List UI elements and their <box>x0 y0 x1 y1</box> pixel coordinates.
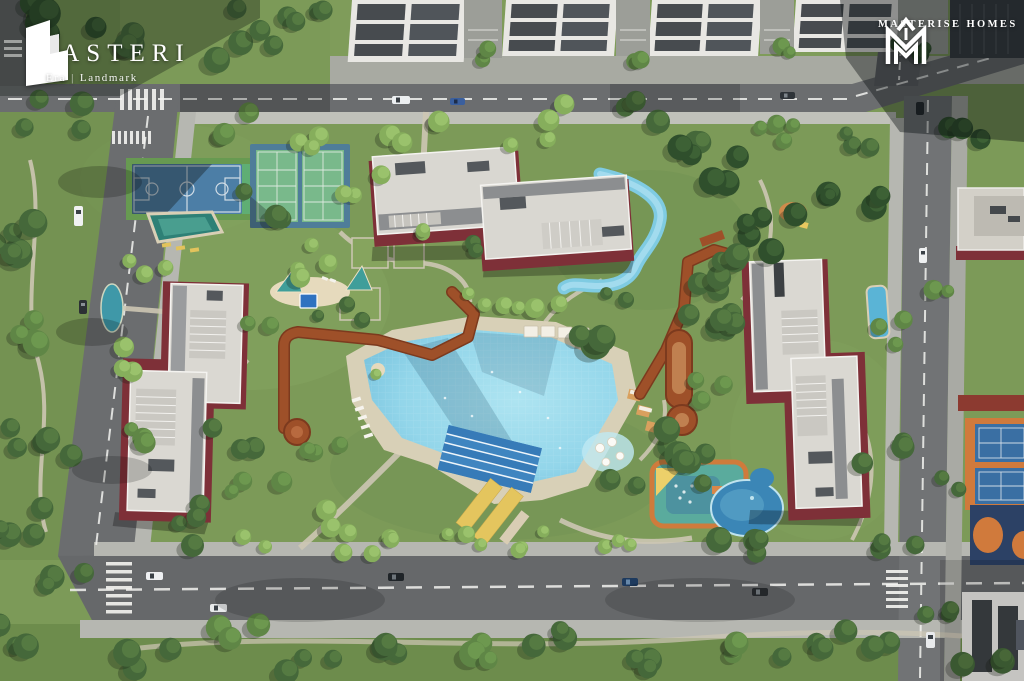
building-northeast <box>956 188 1024 260</box>
townhouse-block <box>648 0 762 56</box>
townhouse-block <box>502 0 618 56</box>
scene-canvas <box>0 0 1024 681</box>
masteri-logo: MASTERI Era | Landmark <box>26 20 191 84</box>
spa-pool <box>300 294 317 308</box>
townhouse-block <box>348 0 468 62</box>
aerial-masterplan: MASTERI Era | Landmark MASTERISE HOMES <box>0 0 1024 681</box>
masterise-logo: MASTERISE HOMES <box>878 14 1010 30</box>
masterise-mm-monogram-icon <box>878 14 934 68</box>
masteri-subtitle: Era | Landmark <box>46 72 191 84</box>
